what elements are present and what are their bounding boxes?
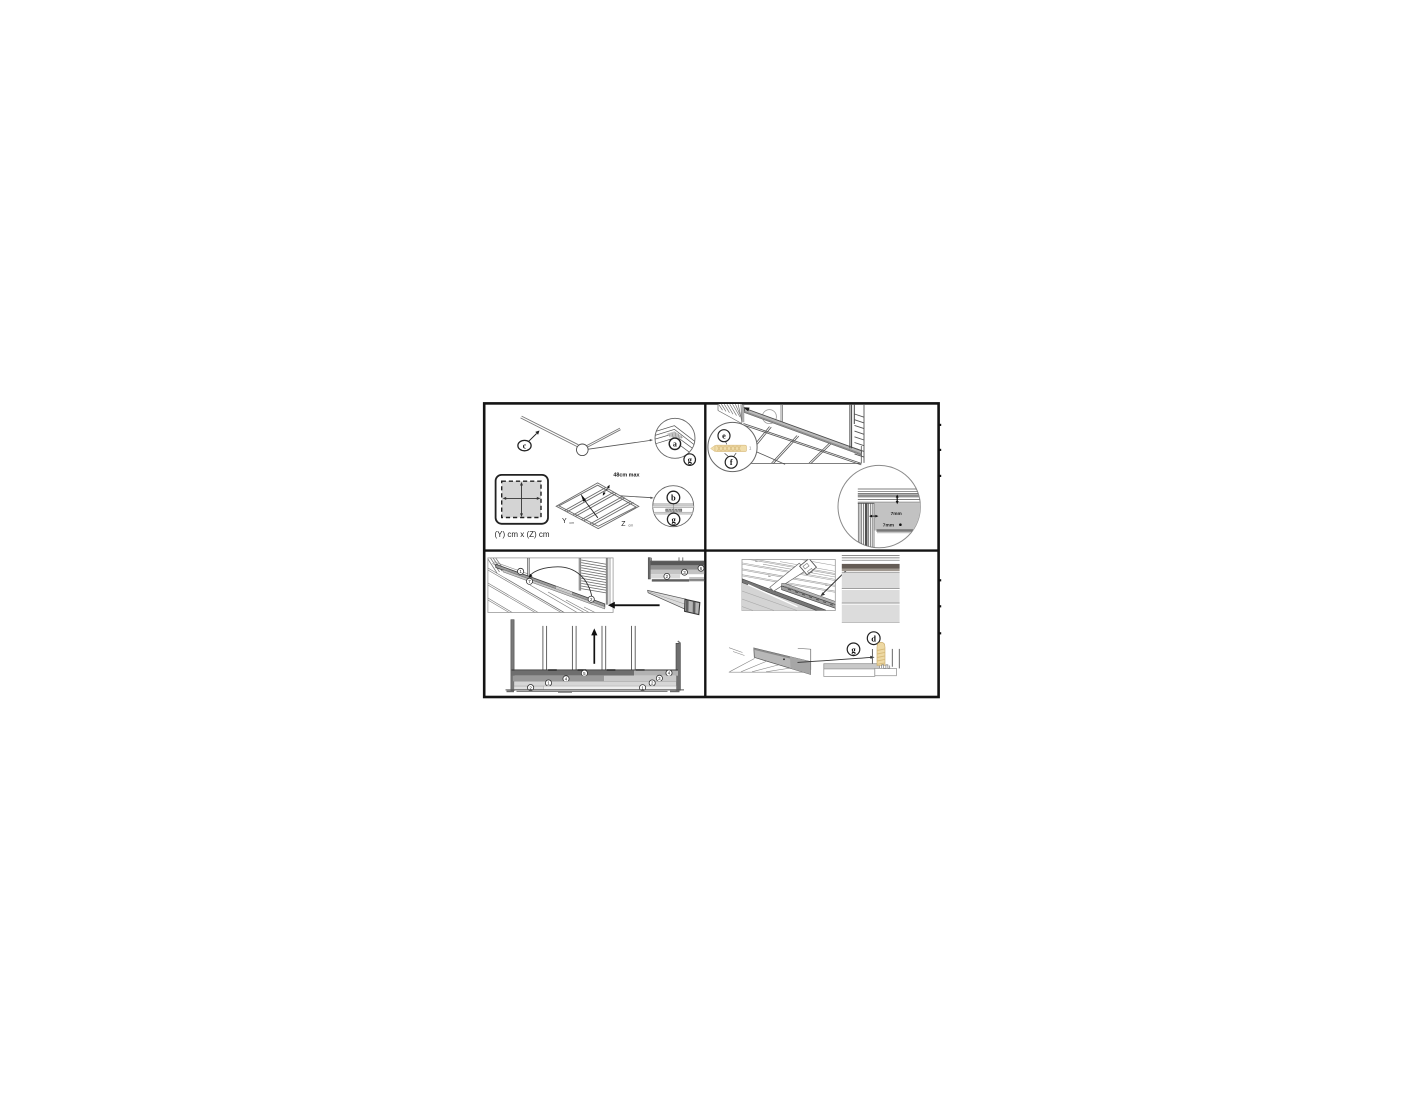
svg-text:b: b (671, 493, 676, 503)
svg-text:Y: Y (562, 518, 567, 525)
svg-text:cm: cm (569, 521, 574, 525)
svg-text:c: c (523, 441, 527, 450)
svg-text:e: e (722, 432, 726, 441)
svg-text:a: a (673, 440, 677, 449)
svg-text:g: g (671, 514, 676, 524)
svg-text:Z: Z (621, 521, 626, 528)
svg-text:7mm: 7mm (891, 511, 902, 517)
svg-text:7mm: 7mm (883, 522, 894, 528)
svg-text:(Y) cm x (Z) cm: (Y) cm x (Z) cm (495, 530, 550, 539)
svg-text:48cm max: 48cm max (613, 473, 639, 479)
svg-text:g: g (851, 644, 856, 654)
svg-text:d: d (871, 633, 876, 643)
svg-text:f: f (730, 458, 733, 467)
svg-text:g: g (688, 455, 693, 465)
svg-text:cm: cm (628, 524, 633, 528)
